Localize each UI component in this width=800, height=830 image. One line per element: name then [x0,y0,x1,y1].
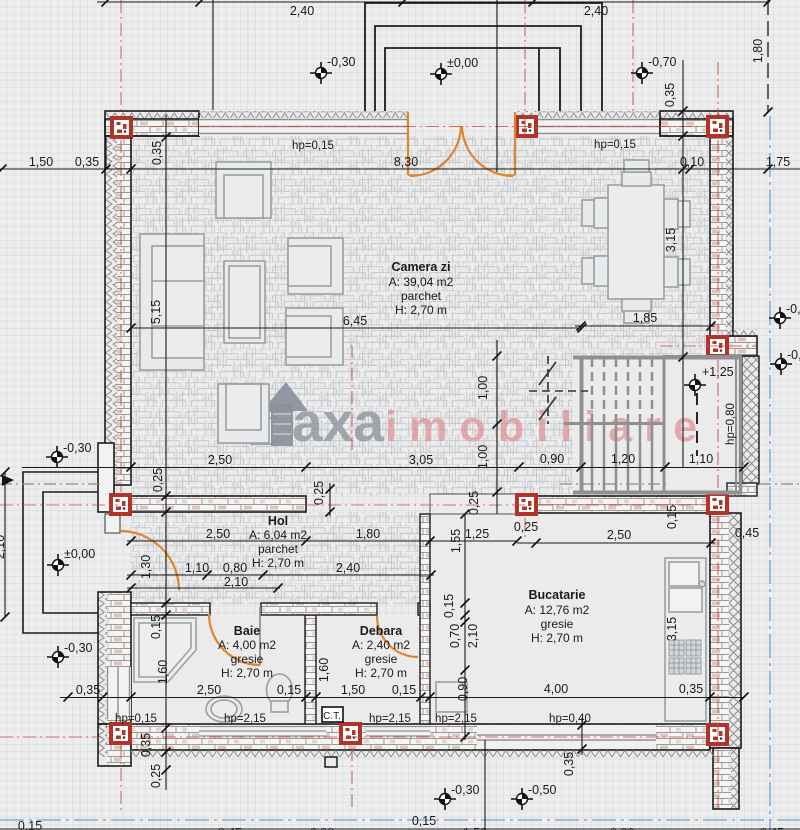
svg-text:Camera zi: Camera zi [391,260,450,274]
svg-text:0,15: 0,15 [412,814,436,828]
svg-text:0,15: 0,15 [392,683,416,697]
svg-text:hp=2,15: hp=2,15 [369,713,411,725]
svg-text:Bucatarie: Bucatarie [529,588,586,602]
svg-text:0,90: 0,90 [540,452,564,466]
svg-text:hp=0,15: hp=0,15 [594,139,636,151]
svg-text:0,10: 0,10 [680,155,704,169]
svg-text:0,80: 0,80 [223,561,247,575]
svg-text:0,15: 0,15 [277,683,301,697]
svg-text:H: 2,70 m: H: 2,70 m [355,666,407,680]
svg-text:hp=0,40: hp=0,40 [549,713,591,725]
svg-text:0,15: 0,15 [442,594,456,618]
svg-text:1,60: 1,60 [317,658,331,682]
svg-text:-0,30: -0,30 [327,55,356,69]
svg-text:0,35: 0,35 [139,733,153,757]
svg-text:Baie: Baie [234,624,260,638]
svg-text:-0,50: -0,50 [528,783,557,797]
svg-text:1,50: 1,50 [29,155,53,169]
svg-text:gresie: gresie [541,617,574,631]
svg-text:±0,00: ±0,00 [447,56,478,70]
svg-text:2,50: 2,50 [197,683,221,697]
svg-text:1,75: 1,75 [766,155,790,169]
svg-text:3,05: 3,05 [409,453,433,467]
svg-text:0,15: 0,15 [18,819,42,830]
svg-text:A: 4,00 m2: A: 4,00 m2 [218,638,276,652]
svg-text:8,30: 8,30 [394,155,418,169]
svg-text:3,15: 3,15 [664,228,678,252]
svg-text:2,40: 2,40 [584,4,608,18]
svg-text:0,70: 0,70 [448,624,462,648]
svg-text:2,10: 2,10 [224,575,248,589]
svg-text:0,45: 0,45 [760,826,784,830]
svg-text:2,10: 2,10 [0,535,7,559]
svg-text:0,25: 0,25 [514,520,538,534]
svg-text:0,25: 0,25 [312,481,326,505]
svg-text:0,15: 0,15 [665,505,679,529]
svg-text:+1,25: +1,25 [702,365,734,379]
svg-text:H: 2,70 m: H: 2,70 m [395,303,447,317]
svg-text:-0,: -0, [786,302,800,316]
svg-text:1,10: 1,10 [185,561,209,575]
svg-text:0,25: 0,25 [151,468,165,492]
svg-text:0,25: 0,25 [467,491,481,515]
svg-text:1,55: 1,55 [449,529,463,553]
svg-text:parchet: parchet [401,289,442,303]
svg-text:gresie: gresie [231,652,264,666]
svg-text:0,35: 0,35 [679,682,703,696]
svg-text:axa: axa [292,391,384,453]
svg-text:3,15: 3,15 [665,617,679,641]
svg-text:1,80: 1,80 [356,527,380,541]
svg-text:2,10: 2,10 [466,624,480,648]
svg-text:6,00: 6,00 [310,826,334,830]
svg-text:A: 12,76 m2: A: 12,76 m2 [525,603,590,617]
svg-text:hp=2,15: hp=2,15 [435,713,477,725]
svg-text:imobiliare: imobiliare [385,403,697,451]
svg-text:H: 2,70 m: H: 2,70 m [531,631,583,645]
svg-text:0,90: 0,90 [456,677,470,701]
svg-text:1,60: 1,60 [156,660,170,684]
svg-text:hp=0,80: hp=0,80 [725,403,737,445]
svg-text:1,50: 1,50 [341,683,365,697]
svg-text:1,50: 1,50 [463,826,487,830]
svg-text:A: 2,40 m2: A: 2,40 m2 [352,638,410,652]
svg-text:-0,30: -0,30 [451,783,480,797]
svg-text:2,50: 2,50 [206,527,230,541]
svg-text:1,80: 1,80 [751,39,765,63]
svg-text:1,10: 1,10 [689,452,713,466]
svg-text:gresie: gresie [365,652,398,666]
svg-text:6,00: 6,00 [610,826,634,830]
svg-text:-0,70: -0,70 [648,55,677,69]
svg-text:±0,00: ±0,00 [64,547,95,561]
svg-text:0,35: 0,35 [562,752,576,776]
svg-text:4,00: 4,00 [544,682,568,696]
svg-text:H: 2,70 m: H: 2,70 m [252,556,304,570]
svg-text:1,30: 1,30 [139,555,153,579]
svg-text:-0,30: -0,30 [64,641,93,655]
svg-text:0,35: 0,35 [76,683,100,697]
svg-text:5,15: 5,15 [149,300,163,324]
svg-text:Hol: Hol [268,514,288,528]
svg-text:0,35: 0,35 [150,141,164,165]
svg-text:1,25: 1,25 [465,527,489,541]
svg-text:Debara: Debara [360,624,403,638]
svg-text:0,45: 0,45 [735,526,759,540]
svg-text:hp=0,15: hp=0,15 [115,713,157,725]
svg-text:1,00: 1,00 [476,445,490,469]
svg-text:0,45: 0,45 [218,826,242,830]
svg-text:hp=2,15: hp=2,15 [224,713,266,725]
svg-text:-0,30: -0,30 [63,441,92,455]
svg-text:0,35: 0,35 [663,83,677,107]
svg-text:2,50: 2,50 [208,453,232,467]
svg-text:1,85: 1,85 [633,311,657,325]
svg-text:A: 6,04 m2: A: 6,04 m2 [249,528,307,542]
svg-text:H: 2,70 m: H: 2,70 m [221,666,273,680]
svg-text:6,45: 6,45 [343,314,367,328]
svg-text:2,40: 2,40 [290,4,314,18]
svg-text:2,40: 2,40 [336,561,360,575]
svg-text:0,15: 0,15 [149,615,163,639]
svg-text:hp=0,15: hp=0,15 [292,140,334,152]
svg-text:1,00: 1,00 [476,376,490,400]
svg-text:0,25: 0,25 [149,764,163,788]
svg-text:parchet: parchet [258,542,299,556]
svg-text:0,35: 0,35 [75,155,99,169]
svg-text:A: 39,04 m2: A: 39,04 m2 [389,275,454,289]
svg-text:-0,: -0, [787,348,800,362]
svg-text:1,20: 1,20 [611,452,635,466]
svg-text:2,50: 2,50 [607,528,631,542]
svg-text:C.T.: C.T. [323,711,341,722]
